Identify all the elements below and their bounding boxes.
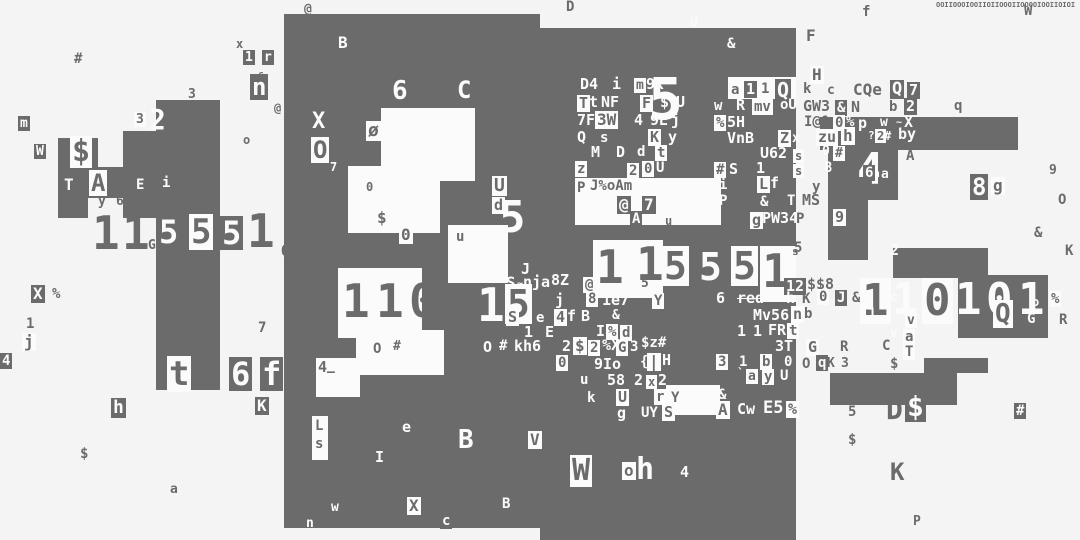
glyph: 6 [863,165,875,181]
glyph: a [903,329,915,345]
glyph: p [858,116,867,131]
glyph: K [255,397,269,415]
glyph: 2 [634,373,643,388]
glyph: 2 [588,340,600,356]
glyph: 4 [554,309,567,326]
glyph: o [243,134,250,146]
glyph: 4 [0,353,12,369]
glyph: x [646,375,657,389]
glyph: 1 [636,241,664,287]
glyph: n [791,306,804,323]
glyph: R [840,340,848,354]
glyph: oU [780,98,797,112]
glyph: a [746,369,758,384]
glyph: G [1027,312,1035,326]
glyph: $ [890,357,898,371]
glyph: 3 [630,340,638,354]
glyph: f [862,5,870,19]
glyph: 2 [890,243,899,258]
glyph: 1 [26,317,34,331]
glyph: u [580,373,588,387]
glyph: Q [890,80,904,99]
glyph: 3 [188,88,196,101]
glyph: & [1034,226,1042,240]
glyph: % [714,115,726,131]
glyph: # [833,146,845,161]
gray-block [123,131,156,218]
glyph: 1 [596,244,624,290]
glyph: S [662,404,675,421]
glyph: @ [274,102,281,114]
glyph: 1 [342,278,370,324]
glyph: A [716,401,730,419]
glyph: 0 [784,355,792,369]
glyph: D4 [580,77,598,92]
glyph: # [1014,403,1026,419]
glyph: o [622,462,636,480]
glyph: j [22,333,36,351]
glyph: 6 [392,78,408,104]
glyph: P [719,194,727,208]
glyph: u [456,230,464,244]
glyph: b [804,307,812,321]
glyph: B [581,309,590,324]
glyph: ? [868,130,875,141]
glyph: Q [577,130,586,145]
glyph: | [647,353,661,371]
glyph: 5 [662,246,689,286]
glyph: D [886,396,903,424]
glyph: S [727,161,740,178]
glyph: X [312,111,325,133]
glyph: FR [768,323,786,338]
glyph: 0 [817,289,829,305]
glyph: 7F [577,113,595,128]
glyph: 5 [157,215,180,249]
glitch-art-canvas: #mW$3x1r6n@o32TAEiy611G5551QkX%1j47hK$at… [0,0,1080,540]
glyph: W [34,144,46,159]
glyph: $ [377,210,387,226]
glyph: F [640,95,653,112]
glyph: PW34 [762,211,798,226]
glyph: k [587,391,595,405]
glyph: NF [601,95,619,110]
glyph: 3W [595,111,618,129]
glyph: g [617,406,626,421]
glyph: 1 [737,324,746,339]
glyph: 3 [134,112,146,127]
glyph: 1 [92,210,120,256]
glyph: ` [737,367,744,379]
glyph: W [570,455,592,487]
glyph: K [802,292,810,306]
glyph: u [665,227,672,239]
glyph: U [780,369,788,383]
glyph: G [806,339,819,356]
glyph: 6 [716,291,725,306]
glyph: D [566,0,574,14]
glyph: g [991,177,1005,195]
glyph: 1 [868,307,876,321]
glyph: o [1032,296,1039,308]
glyph: h [786,291,795,306]
glyph: 5 [848,405,856,419]
glyph: nq [536,357,553,371]
glyph: CQe [853,82,882,98]
glyph: 3 [841,357,849,370]
glyph: # [714,162,726,178]
glyph: 8Z [551,273,569,288]
glyph: X [407,497,421,515]
glyph: s [792,246,799,257]
gray-block [540,28,796,40]
glyph: v [890,327,898,340]
glyph: — [327,366,335,379]
glyph: c [440,513,452,529]
glyph: h [841,127,855,145]
glyph: k [803,82,811,96]
glyph: $ [848,433,856,447]
glyph: $ [70,136,92,168]
glyph: UY [641,406,658,420]
glyph: 1e7 [602,293,629,308]
glyph: 7 [258,321,266,335]
glyph: y [762,369,774,385]
glyph: 5 [731,246,758,286]
glyph: I@& [804,115,829,129]
glyph: R [1059,313,1067,327]
glyph: A [906,149,914,163]
glyph: VnB [727,131,754,146]
glyph: h [111,398,126,418]
glyph: T [787,194,795,208]
glyph: % [786,401,799,418]
gray-block [58,198,88,218]
glyph: J%oAm [590,179,632,193]
glyph: 1 [744,81,757,98]
glyph: s [793,149,804,163]
glyph: OOIIOOOIOOIIOIIOOOIIOOOOIOOIIOIOI [936,2,1075,9]
glyph: 3T [775,339,793,354]
gray-block [720,500,796,540]
glyph: K [890,460,904,484]
glyph: w [714,99,722,113]
glyph: q [954,99,962,113]
glyph: x [792,132,800,145]
glyph: @ [304,3,312,16]
glyph: 5 [699,248,722,286]
glyph: 5 [220,216,243,250]
glyph: 7 [642,196,656,214]
glyph: y [668,130,677,145]
glyph: T [903,344,915,360]
glyph: J [835,290,847,306]
glyph: ø [366,121,381,141]
glyph: 1 [376,278,404,324]
glyph: 1 [955,278,982,322]
glyph: a [170,483,178,496]
glyph: e [402,420,411,435]
glyph: O [802,357,810,371]
glyph: D [616,145,625,160]
glyph: x [236,38,243,50]
glyph: O [483,340,492,355]
white-cutout [348,166,440,233]
glyph: & [612,309,620,322]
glyph: 9 [833,209,846,226]
glyph: a [731,83,739,97]
glyph: 8 [970,174,988,200]
glyph: B [338,35,348,51]
glyph: 2 [627,163,639,179]
glyph: $ [80,447,88,461]
glyph: H [662,353,671,368]
glyph: H [810,66,824,84]
glyph: 5H [727,115,745,130]
glyph: L [315,419,323,433]
glyph: w [880,116,888,129]
glyph: mv [752,99,773,115]
glyph: U [656,161,664,175]
glyph: C [882,339,890,353]
glyph: C [457,78,471,102]
glyph: 7 [330,161,337,173]
glyph: red [737,291,764,306]
glyph: O [373,342,381,356]
glyph: a [879,167,891,182]
glyph: n [306,517,314,530]
glyph: & [760,195,768,209]
glyph: U [690,17,698,30]
glyph: n [250,74,268,100]
glyph: Q [281,243,291,259]
glyph: F [806,28,816,44]
glyph: K [1065,244,1073,258]
glyph: b [760,354,772,370]
glyph: O [1058,193,1066,207]
gray-block [924,358,988,373]
glyph: t [589,95,598,110]
glyph: j [671,113,680,128]
glyph: 0 [922,278,953,324]
glyph: i [612,77,621,92]
glyph: Q [993,300,1013,328]
glyph: 0 [822,145,830,158]
glyph: d [637,145,645,159]
glyph: # [499,339,507,353]
glyph: 9 [1049,164,1057,177]
glyph: S [506,275,516,291]
glyph: S [506,309,519,326]
glyph: 8 [824,161,832,175]
glyph: $ [573,337,587,355]
glyph: Y [652,293,664,309]
glyph: 0 [399,226,413,244]
glyph: kh6 [514,339,541,354]
glyph: 0 [642,161,654,177]
glyph: w [331,501,339,514]
glyph: s [315,437,323,451]
glyph: GW3 [803,99,830,114]
glyph: % [1049,291,1061,307]
glyph: 9E [650,113,668,128]
glyph: $z# [641,336,666,350]
glyph: s [600,131,608,145]
glyph: MS [802,193,820,208]
glyph: i [162,176,170,190]
glyph: 3 [716,354,728,370]
glyph: c [890,291,898,304]
glyph: j [555,293,564,308]
glyph: i [719,178,727,192]
glyph: K [648,129,661,146]
glyph: 4 [318,360,327,375]
glyph: K [827,357,835,370]
glyph: 1 [756,161,765,176]
glyph: P [796,212,804,226]
glyph: f [260,357,283,391]
glyph: R [736,98,745,113]
glyph: 1 [247,208,275,254]
glyph: $ [660,95,669,110]
glyph: # [393,340,401,353]
glyph: E5 [763,400,783,417]
glyph: M [591,145,600,160]
glyph: e [536,311,544,325]
glyph: t [167,356,191,392]
glyph: $ [905,392,926,422]
glyph: % [52,287,60,301]
glyph: E [545,325,554,340]
glyph: 0 [366,181,373,193]
glyph: U [676,95,685,110]
glyph: 2 [658,373,667,388]
glyph: @ [617,196,631,214]
glyph: 5 [189,214,213,250]
glyph: A [89,170,107,196]
glyph: L [757,176,770,193]
glyph: E [136,178,144,192]
glyph: 0 [409,278,437,324]
glyph: m [634,78,646,93]
glyph: I [375,450,384,465]
glyph: r [262,50,274,65]
glyph: 9Io [594,357,621,372]
glyph: 4 [634,113,643,128]
glyph: X [31,285,45,303]
glyph: h [636,455,654,485]
glyph: nja [523,275,550,290]
glyph: A [630,211,642,227]
glyph: 1 [122,210,150,256]
glyph: B [502,497,510,511]
glyph: 0 [556,355,568,371]
glyph: f [567,309,576,324]
glyph: 1 [477,282,505,328]
glyph: # [74,52,82,66]
glyph: 2 [562,339,571,354]
glyph: O [311,137,329,163]
glyph: c [827,84,835,97]
glyph: 1 [243,50,255,65]
glyph: G [616,340,628,356]
glyph: s [793,164,804,178]
glyph: B [458,427,474,453]
glyph: G [148,239,156,252]
glyph: 1 [761,82,769,96]
gray-block [284,14,540,40]
glyph: by [898,127,916,142]
glyph: V [528,431,542,449]
glyph: T [64,177,74,193]
glyph: v [905,313,917,328]
glyph: 1 [753,324,762,339]
glyph: N [851,100,860,115]
glyph: P [577,181,585,195]
glyph: m [18,116,30,131]
glyph: # [884,130,891,142]
glyph: P [913,515,921,528]
glyph: 2 [149,106,166,134]
glyph: 6 [229,357,252,391]
glyph: 58 [607,373,625,388]
glyph: k [297,259,305,272]
glyph: 1 [446,278,474,324]
glyph: b [889,100,897,114]
glyph: f [770,176,779,191]
glyph: t [655,145,667,161]
glyph: z [575,161,587,177]
glyph: W [1024,4,1032,18]
glyph: Cw [737,402,755,417]
glyph: 4 [680,465,689,480]
glyph: 5 [499,196,526,240]
glyph: & [727,37,735,51]
